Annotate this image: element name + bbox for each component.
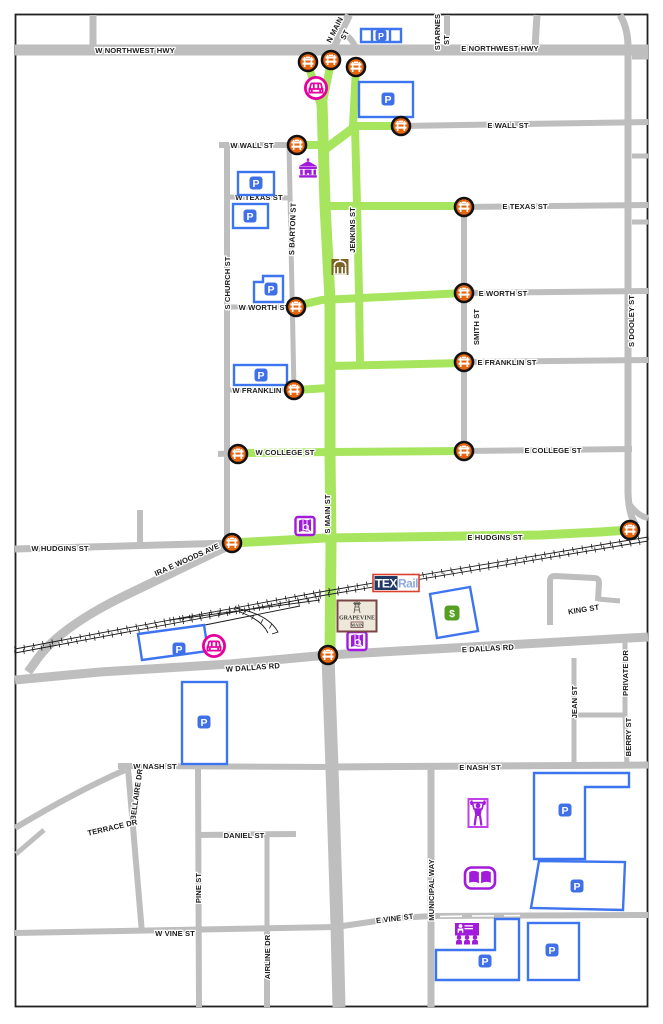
svg-text:PINE ST: PINE ST xyxy=(194,873,203,903)
svg-text:W NORTHWEST HWY: W NORTHWEST HWY xyxy=(95,46,175,55)
svg-text:W WALL ST: W WALL ST xyxy=(230,141,274,150)
svg-text:JENKINS ST: JENKINS ST xyxy=(348,207,357,253)
svg-text:P: P xyxy=(246,211,253,223)
svg-text:P: P xyxy=(200,717,207,729)
svg-text:S DOOLEY ST: S DOOLEY ST xyxy=(627,295,636,347)
svg-text:P: P xyxy=(561,805,568,817)
svg-text:DANIEL ST: DANIEL ST xyxy=(224,831,265,840)
svg-text:W COLLEGE ST: W COLLEGE ST xyxy=(256,448,315,457)
svg-text:S MAIN ST: S MAIN ST xyxy=(323,494,332,534)
svg-text:AIRLINE DR: AIRLINE DR xyxy=(263,934,272,979)
svg-text:S CHURCH ST: S CHURCH ST xyxy=(223,256,232,309)
svg-text:PRIVATE DR: PRIVATE DR xyxy=(621,650,630,696)
svg-text:P: P xyxy=(573,881,580,893)
svg-text:P: P xyxy=(257,370,264,382)
svg-text:STARNES: STARNES xyxy=(433,14,442,50)
svg-text:MUNICIPAL WAY: MUNICIPAL WAY xyxy=(427,859,436,921)
svg-text:E FRANKLIN ST: E FRANKLIN ST xyxy=(477,358,536,367)
svg-text:ST: ST xyxy=(442,35,451,45)
svg-text:E NASH ST: E NASH ST xyxy=(459,763,501,772)
svg-text:E HUDGINS ST: E HUDGINS ST xyxy=(467,533,522,542)
svg-text:P: P xyxy=(252,178,259,190)
svg-text:W HUDGINS ST: W HUDGINS ST xyxy=(31,544,89,553)
svg-text:$: $ xyxy=(449,608,455,620)
svg-text:S BARTON ST: S BARTON ST xyxy=(287,202,298,255)
svg-text:BERRY ST: BERRY ST xyxy=(624,717,633,756)
svg-text:E WORTH ST: E WORTH ST xyxy=(479,289,528,298)
svg-text:W WORTH ST: W WORTH ST xyxy=(239,303,290,312)
svg-text:E WALL ST: E WALL ST xyxy=(487,121,529,130)
svg-text:P: P xyxy=(378,31,384,41)
svg-text:JEAN ST: JEAN ST xyxy=(570,685,579,718)
svg-text:P: P xyxy=(548,945,555,957)
svg-text:P: P xyxy=(267,284,274,296)
svg-text:E COLLEGE ST: E COLLEGE ST xyxy=(525,446,582,455)
svg-text:P: P xyxy=(384,94,391,106)
svg-text:W VINE ST: W VINE ST xyxy=(155,929,195,938)
svg-text:P: P xyxy=(481,956,488,968)
svg-text:E NORTHWEST HWY: E NORTHWEST HWY xyxy=(461,44,538,53)
svg-text:E TEXAS ST: E TEXAS ST xyxy=(502,202,548,211)
svg-text:SMITH ST: SMITH ST xyxy=(472,309,481,345)
svg-text:P: P xyxy=(175,644,182,656)
